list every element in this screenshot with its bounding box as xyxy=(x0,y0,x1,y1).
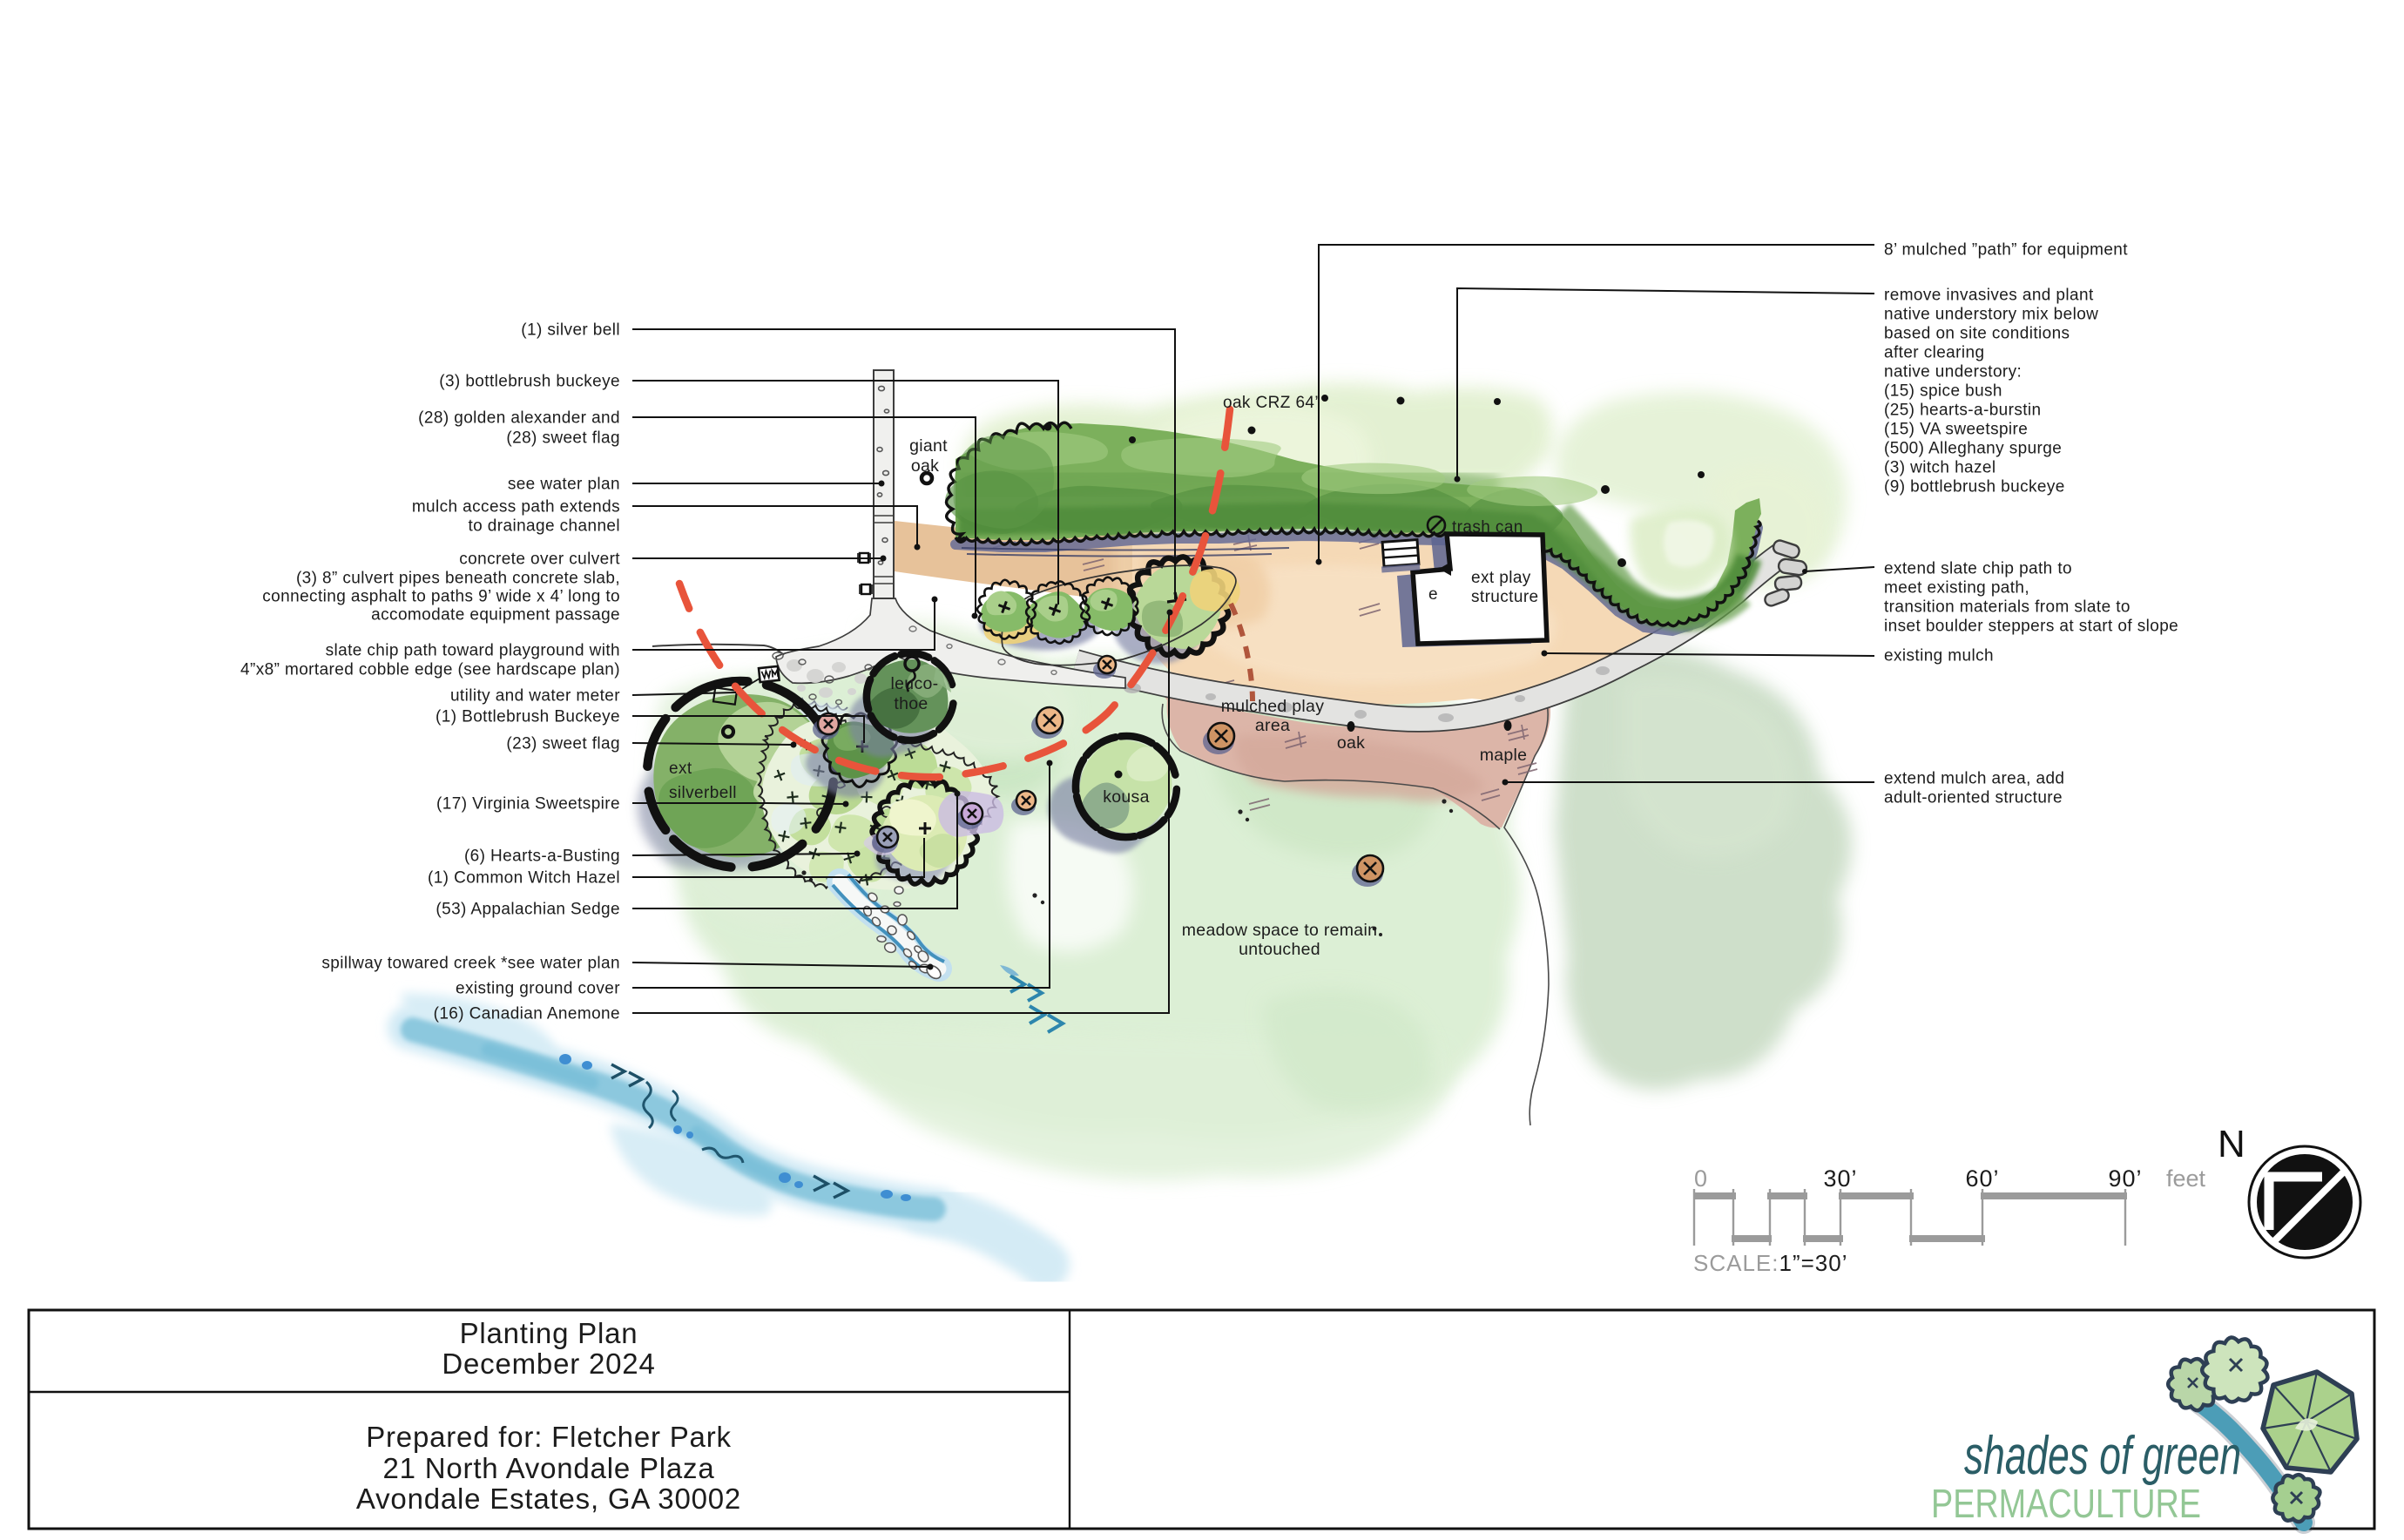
svg-text:connecting asphalt to paths 9’: connecting asphalt to paths 9’ wide x 4’… xyxy=(262,588,620,606)
svg-text:native understory:: native understory: xyxy=(1884,363,2022,382)
svg-text:meet existing path,: meet existing path, xyxy=(1884,579,2029,598)
svg-text:mulched play: mulched play xyxy=(1221,697,1325,716)
svg-text:oak: oak xyxy=(911,456,939,476)
svg-text:silverbell: silverbell xyxy=(669,784,737,802)
svg-text:(9) bottlebrush buckeye: (9) bottlebrush buckeye xyxy=(1884,478,2065,496)
svg-text:0: 0 xyxy=(1694,1165,1707,1192)
svg-text:4”x8” mortared cobble edge (se: 4”x8” mortared cobble edge (see hardscap… xyxy=(240,661,620,679)
svg-text:(53) Appalachian Sedge: (53) Appalachian Sedge xyxy=(436,901,620,919)
svg-text:adult-oriented structure: adult-oriented structure xyxy=(1884,789,2063,807)
svg-text:transition materials from slat: transition materials from slate to xyxy=(1884,598,2131,617)
svg-text:spillway towared creek *see wa: spillway towared creek *see water plan xyxy=(321,955,620,973)
svg-text:8’ mulched ”path” for equipmen: 8’ mulched ”path” for equipment xyxy=(1884,241,2128,260)
svg-text:60’: 60’ xyxy=(1965,1165,1999,1192)
svg-text:(28) sweet flag: (28) sweet flag xyxy=(506,429,620,448)
svg-text:ext: ext xyxy=(669,760,692,778)
svg-text:(16) Canadian Anemone: (16) Canadian Anemone xyxy=(434,1005,620,1023)
svg-text:e: e xyxy=(1428,585,1438,604)
svg-text:giant: giant xyxy=(909,436,948,456)
svg-text:area: area xyxy=(1255,716,1290,735)
svg-text:(25) hearts-a-burstin: (25) hearts-a-burstin xyxy=(1884,402,2042,420)
svg-text:(1) Common Witch Hazel: (1) Common Witch Hazel xyxy=(428,869,620,888)
svg-text:accomodate equipment passage: accomodate equipment passage xyxy=(371,606,620,625)
svg-text:extend slate chip path to: extend slate chip path to xyxy=(1884,560,2072,578)
svg-text:inset boulder steppers at star: inset boulder steppers at start of slope xyxy=(1884,618,2178,636)
svg-text:thoe: thoe xyxy=(894,694,928,713)
svg-text:Planting Plan: Planting Plan xyxy=(460,1317,638,1349)
svg-text:(3) bottlebrush buckeye: (3) bottlebrush buckeye xyxy=(439,373,620,391)
svg-text:Avondale Estates, GA 30002: Avondale Estates, GA 30002 xyxy=(356,1483,741,1515)
svg-text:90’: 90’ xyxy=(2108,1165,2142,1192)
svg-text:meadow space to remain: meadow space to remain xyxy=(1182,921,1377,940)
svg-text:kousa: kousa xyxy=(1103,787,1150,807)
svg-text:to drainage channel: to drainage channel xyxy=(468,517,620,536)
svg-text:concrete over culvert: concrete over culvert xyxy=(459,550,620,569)
svg-text:oak CRZ 64’: oak CRZ 64’ xyxy=(1223,394,1319,412)
svg-text:(15) VA sweetspire: (15) VA sweetspire xyxy=(1884,421,2028,439)
svg-text:extend mulch area, add: extend mulch area, add xyxy=(1884,770,2064,788)
svg-text:mulch access path extends: mulch access path extends xyxy=(412,498,620,517)
svg-text:feet: feet xyxy=(2166,1165,2206,1192)
svg-text:(23) sweet flag: (23) sweet flag xyxy=(506,735,620,753)
svg-text:Prepared for: Fletcher Park: Prepared for: Fletcher Park xyxy=(366,1421,732,1453)
svg-text:(500) Alleghany spurge: (500) Alleghany spurge xyxy=(1884,440,2062,458)
svg-text:native understory mix below: native understory mix below xyxy=(1884,306,2098,324)
svg-text:existing mulch: existing mulch xyxy=(1884,647,1994,665)
svg-text:21 North Avondale Plaza: 21 North Avondale Plaza xyxy=(382,1452,714,1484)
svg-text:see water plan: see water plan xyxy=(508,476,620,494)
svg-text:maple: maple xyxy=(1480,746,1528,765)
svg-text:(1) silver bell: (1) silver bell xyxy=(521,321,620,340)
svg-text:based on site conditions: based on site conditions xyxy=(1884,325,2070,343)
svg-text:N: N xyxy=(2218,1123,2245,1165)
svg-text:untouched: untouched xyxy=(1239,940,1320,959)
svg-text:30’: 30’ xyxy=(1823,1165,1857,1192)
svg-text:oak: oak xyxy=(1337,733,1365,753)
svg-text:existing ground cover: existing ground cover xyxy=(456,980,620,998)
svg-text:December 2024: December 2024 xyxy=(442,1347,655,1380)
svg-text:(15) spice bush: (15) spice bush xyxy=(1884,382,2002,401)
svg-text:ext play: ext play xyxy=(1471,569,1531,587)
svg-text:leuco-: leuco- xyxy=(891,674,939,693)
svg-text:shades of green: shades of green xyxy=(1964,1426,2241,1486)
svg-text:remove invasives and plant: remove invasives and plant xyxy=(1884,287,2094,305)
svg-text:(28) golden alexander and: (28) golden alexander and xyxy=(418,409,620,428)
svg-text:trash can: trash can xyxy=(1452,518,1523,537)
svg-text:PERMACULTURE: PERMACULTURE xyxy=(1931,1481,2201,1526)
svg-text:utility and water meter: utility and water meter xyxy=(450,687,620,706)
svg-text:structure: structure xyxy=(1471,588,1539,606)
svg-text:after clearing: after clearing xyxy=(1884,344,1984,362)
svg-text:(3) witch hazel: (3) witch hazel xyxy=(1884,459,1996,477)
svg-text:(3) 8” culvert pipes beneath c: (3) 8” culvert pipes beneath concrete sl… xyxy=(296,570,620,588)
svg-text:(17) Virginia Sweetspire: (17) Virginia Sweetspire xyxy=(436,795,620,814)
svg-text:SCALE:1”=30’: SCALE:1”=30’ xyxy=(1693,1250,1848,1276)
svg-text:(6) Hearts-a-Busting: (6) Hearts-a-Busting xyxy=(464,848,620,866)
svg-text:(1) Bottlebrush Buckeye: (1) Bottlebrush Buckeye xyxy=(436,708,620,726)
svg-text:slate chip path toward playgro: slate chip path toward playground with xyxy=(326,642,620,660)
